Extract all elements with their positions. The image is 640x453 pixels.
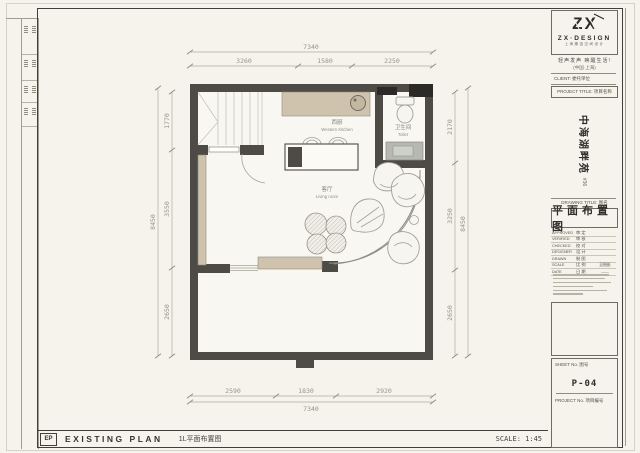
project-name-note: #36 [582,177,588,185]
dim-bottom-2: 1830 [298,387,314,395]
armchair-bottom [388,232,420,264]
dim-left-3: 2650 [163,304,171,320]
brand-name: ZX·DESIGN [552,35,617,42]
brand-slogan: 轻声发声 唤醒生活! [548,57,621,64]
dim-bottom-3: 2920 [376,387,392,395]
notes-block [553,274,614,297]
plan-title-en: EXISTING PLAN [65,434,163,444]
sign-table: APPROVED审 定 VERIFIED审 核 CHECKED校 对 DESIG… [551,230,616,276]
wall-pier-bottom [296,360,314,368]
dim-right-overall: 8450 [459,216,467,232]
toilet-wall-left [375,92,383,168]
zx-logo-icon: ZX [558,13,612,33]
left-cabinet [198,155,206,265]
brand-location: (中国·上海) [548,65,621,71]
dim-left-overall: 8450 [149,214,157,230]
room-label-kitchen-en: Western Kitchen [321,127,353,132]
scale-text: SCALE: 1:45 [496,435,542,443]
stair-wall-right [240,145,264,155]
inner-wall-left [198,264,230,273]
sink [393,146,413,156]
project-name-vertical: 中海湖畔苑 #36 [548,102,621,198]
sheet-label: SHEET No. 图号 [555,362,588,368]
title-block: ZX ZX·DESIGN 上海臻选空间设计 轻声发声 唤醒生活! (中国·上海)… [548,8,621,446]
sheet-number-box: SHEET No. 图号 P-04 PROJECT No. 项目编号 [551,358,618,448]
room-label-kitchen-cn: 西厨 [331,119,343,126]
dim-top-1: 3260 [236,57,252,65]
project-no-label: PROJECT No. 项目编号 [555,398,603,404]
spare-box [551,302,618,356]
sheet-number: P-04 [552,379,617,389]
toilet-tank [396,97,414,105]
kitchen-counter [282,92,370,116]
dim-bottom-overall: 7340 [303,405,319,413]
drawing-sheet: 7340 3260 1580 2250 8450 1770 3550 2650 … [0,0,640,453]
room-label-living-en: Living room [316,194,339,199]
dim-right-3: 2650 [446,305,454,321]
dim-bottom-1: 2590 [225,387,241,395]
project-title-label: PROJECT TITLE: 项目名称 [551,86,618,98]
brand-name-cn: 上海臻选空间设计 [552,42,617,47]
dim-right-2: 3250 [446,208,454,224]
room-label-toilet-en: Toilet [398,132,409,137]
dim-top-2: 1580 [317,57,333,65]
dim-top-overall: 7340 [303,43,319,51]
dim-left-1: 1770 [163,113,171,129]
cooktop-icon [351,96,366,111]
plan-code-badge: EP [40,433,57,446]
room-label-living-cn: 客厅 [321,185,333,193]
client-label: CLIENT: 委托单位 [554,76,590,82]
project-name: 中海湖畔苑 [577,114,592,174]
dim-left-2: 3550 [163,201,171,217]
stair-wall-left [198,145,208,155]
bench-cabinet [258,257,322,269]
room-label-toilet-cn: 卫生间 [395,123,412,131]
drawing-title: 平面布置图 [551,208,618,228]
plan-title-cn: 1L平面布置图 [179,434,222,444]
toilet-bowl [397,105,413,123]
footer-bar: EP EXISTING PLAN 1L平面布置图 SCALE: 1:45 [37,430,548,447]
floor-plan: 7340 3260 1580 2250 8450 1770 3550 2650 … [0,0,640,453]
side-table [410,216,419,225]
logo-box: ZX ZX·DESIGN 上海臻选空间设计 [551,10,618,55]
dim-right-1: 2170 [446,119,454,135]
dim-top-3: 2250 [384,57,400,65]
